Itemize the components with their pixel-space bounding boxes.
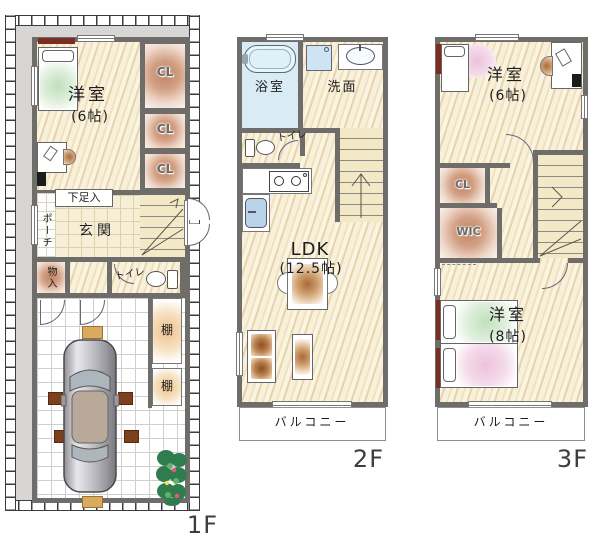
- window-right-3f: [581, 95, 588, 119]
- coffee-table-top: [295, 339, 310, 375]
- garage-beam-bottom: [82, 496, 103, 508]
- bed1-pillow-bedroom8: [443, 305, 456, 339]
- window-top-2f: [266, 34, 304, 41]
- room-label-bedroom6-1f: 洋室: [38, 86, 138, 105]
- lot-boundary-top: [5, 15, 200, 26]
- sofa-cushion-1: [251, 334, 272, 356]
- closet-label-cl3-1f: CL: [145, 163, 185, 176]
- vanity-tap: [359, 44, 361, 51]
- wall-closet-strip-1f: [38, 38, 75, 44]
- bathtub-inner: [249, 49, 291, 69]
- washing-machine-dial: [324, 47, 329, 52]
- wall-wic-right: [497, 208, 502, 258]
- label-ldk: LDK: [270, 240, 350, 260]
- garage-door-leaf-1: [40, 300, 41, 325]
- plant: [156, 448, 188, 506]
- bed-pillow-bedroom6-3f: [444, 46, 465, 57]
- sofa-cushion-2: [251, 358, 272, 379]
- window-top-3f: [475, 34, 519, 41]
- label-balcony-3f: バルコニー: [448, 416, 574, 429]
- bed2-pillow-bedroom8: [443, 348, 456, 382]
- garage-door-leaf-2: [80, 300, 81, 325]
- front-door-arc-upper: [188, 198, 210, 220]
- label-shoe-cabinet: 下足入: [55, 192, 113, 204]
- bath-faucet: [242, 54, 248, 64]
- label-bathroom: 浴室: [244, 81, 296, 95]
- wall-bath-washroom: [298, 42, 303, 128]
- window-top-1f: [77, 35, 115, 42]
- tv-1f: [37, 172, 46, 186]
- bed-pillow-1f: [42, 50, 74, 62]
- label-shelf-bottom: 棚: [152, 380, 182, 393]
- kitchen-tap: [248, 211, 256, 213]
- floor-label-3f: 3F: [542, 446, 588, 472]
- planter-3: [118, 392, 133, 405]
- front-door-arc-lower: [188, 224, 210, 246]
- toilet-tank-1f: [167, 270, 178, 289]
- room-size-bedroom8: (8帖): [458, 330, 558, 345]
- toilet-tank-2f: [245, 139, 255, 157]
- stove-burner-1: [274, 176, 284, 186]
- window-left-2f: [236, 332, 243, 376]
- label-balcony-2f: バルコニー: [250, 416, 374, 429]
- bedroom8-closet-dashed: [442, 264, 476, 265]
- room-size-bedroom6-3f: (6帖): [458, 89, 558, 104]
- hall-floor-1f: [70, 262, 107, 293]
- porch-opening-1f: [31, 205, 38, 245]
- stairs-arrow-2f: [340, 128, 383, 222]
- bed2-blanket-bedroom8: [457, 344, 515, 386]
- closet-label-cl1-1f: CL: [145, 66, 185, 79]
- floor-label-1f: 1F: [170, 512, 218, 538]
- label-wic: WIC: [440, 226, 497, 238]
- desk-item-3f: [572, 74, 581, 87]
- label-washroom: 洗面: [315, 81, 370, 95]
- window-left-3f: [434, 268, 441, 296]
- stairs-arrow-1f: [140, 195, 185, 257]
- label-entrance: 玄関: [57, 224, 137, 239]
- wall-bedroom8-top-right: [568, 258, 583, 263]
- stairs-arrow-3f: [538, 155, 583, 258]
- label-storage-monoire: 物入: [45, 264, 56, 292]
- wall-bedroom8-top-left: [440, 258, 540, 263]
- floor-plan-canvas: 洋室 (6帖) CL CL CL 下足入 ポーチ 玄関 物入 トイレ 棚 棚 1…: [0, 0, 600, 546]
- room-label-bedroom8: 洋室: [458, 306, 558, 324]
- lot-boundary-right: [189, 15, 200, 511]
- lot-boundary-left: [5, 15, 16, 511]
- room-size-bedroom6-1f: (6帖): [40, 110, 140, 125]
- planter-4: [124, 430, 139, 443]
- label-shelf-top: 棚: [152, 324, 182, 337]
- stove-knob: [303, 173, 307, 177]
- stove-burner-2: [291, 176, 301, 186]
- room-label-bedroom6-3f: 洋室: [456, 66, 556, 84]
- closet-label-cl2-1f: CL: [145, 123, 185, 136]
- wall-cl-right-3f: [485, 163, 490, 203]
- car-top-view: [61, 337, 119, 495]
- window-left-1f: [31, 66, 38, 106]
- label-ldk-size: (12.5帖): [266, 262, 356, 277]
- kitchen-sink: [245, 198, 267, 228]
- closet-label-cl-3f: CL: [440, 179, 485, 191]
- floor-label-2f: 2F: [340, 446, 384, 472]
- label-porch: ポーチ: [40, 205, 51, 257]
